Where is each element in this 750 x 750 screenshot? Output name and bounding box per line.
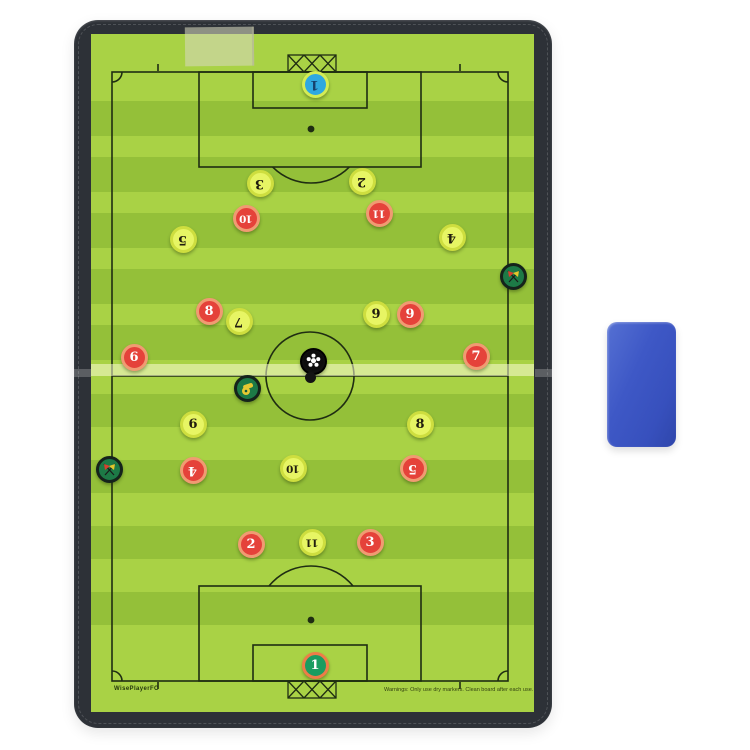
player-magnet-yellow-4[interactable]: 4 [439, 224, 466, 251]
player-magnet-keeper_green-1[interactable]: 1 [302, 652, 329, 679]
soccer-ball-icon [302, 348, 325, 375]
crossed-flags-icon [99, 459, 120, 480]
player-magnet-yellow-10[interactable]: 10 [280, 455, 307, 482]
player-magnet-yellow-2[interactable]: 2 [349, 168, 376, 195]
player-magnet-yellow-7[interactable]: 7 [226, 308, 253, 335]
player-magnet-yellow-8[interactable]: 8 [407, 411, 434, 438]
flags-magnet[interactable] [96, 456, 123, 483]
player-magnet-yellow-11[interactable]: 11 [299, 529, 326, 556]
whistle-magnet[interactable] [234, 375, 261, 402]
crossed-flags-icon [503, 266, 524, 287]
fold-notch-left [74, 369, 91, 377]
ball-magnet[interactable] [300, 348, 327, 375]
player-magnet-yellow-9[interactable]: 9 [363, 301, 390, 328]
warning-text: Warnings: Only use dry markers. Clean bo… [384, 687, 533, 693]
player-magnet-red-2[interactable]: 2 [238, 531, 265, 558]
player-magnet-red-7[interactable]: 7 [463, 343, 490, 370]
whistle-icon [237, 378, 258, 399]
player-magnet-yellow-6[interactable]: 6 [180, 411, 207, 438]
player-magnet-yellow-5[interactable]: 5 [170, 226, 197, 253]
player-magnet-red-9[interactable]: 9 [397, 301, 424, 328]
player-magnet-red-11[interactable]: 11 [366, 200, 393, 227]
player-magnet-red-10[interactable]: 10 [233, 205, 260, 232]
player-magnet-red-5[interactable]: 5 [400, 455, 427, 482]
player-magnet-keeper_blue-1[interactable]: 1 [302, 71, 329, 98]
tape-strip [185, 27, 254, 67]
player-magnet-red-6[interactable]: 6 [121, 344, 148, 371]
fold-notch-right [535, 369, 552, 377]
player-magnet-red-3[interactable]: 3 [357, 529, 384, 556]
player-magnet-red-4[interactable]: 4 [180, 457, 207, 484]
ball-stand-knob [305, 372, 316, 383]
product-photo: 13210115487996768410521131 WisePlayerFC … [0, 0, 750, 750]
player-magnet-red-8[interactable]: 8 [196, 298, 223, 325]
flags-magnet[interactable] [500, 263, 527, 290]
brand-text: WisePlayerFC [114, 686, 159, 692]
eraser[interactable] [607, 322, 676, 447]
player-magnet-yellow-3[interactable]: 3 [247, 170, 274, 197]
